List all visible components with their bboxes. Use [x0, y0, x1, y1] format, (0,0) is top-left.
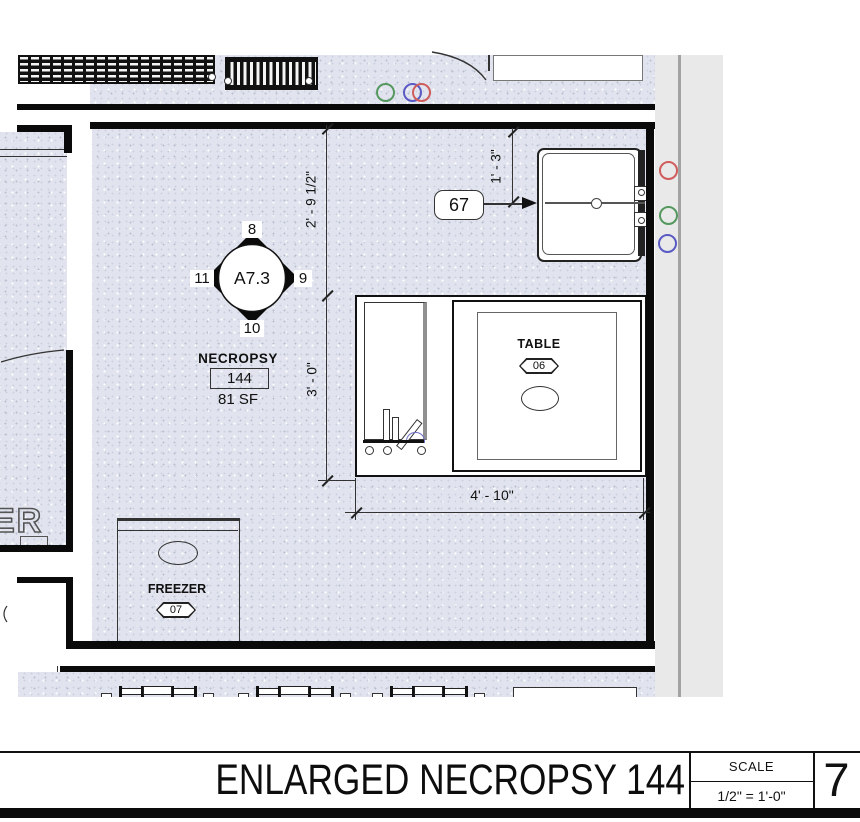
- markup-circle-green[interactable]: [376, 83, 395, 102]
- cart-base-line: [363, 440, 424, 443]
- sheet-number: 7: [813, 752, 860, 807]
- door-leaf-line: [488, 55, 490, 71]
- table-label: TABLE: [489, 337, 589, 351]
- bench-unit-icon: [250, 686, 339, 697]
- table-outline: [513, 687, 637, 697]
- room-number-box: 144: [210, 368, 269, 389]
- casework-grate-icon: [18, 55, 215, 84]
- markup-circle-blue[interactable]: [658, 234, 677, 253]
- cart-tool-icon: [392, 417, 399, 441]
- markup-circle-red[interactable]: [659, 161, 678, 180]
- wall-corridor-south: [17, 104, 657, 110]
- grate-caster-icon: [305, 77, 313, 85]
- wall-left-horizontal-2: [17, 577, 67, 583]
- dim-sink-offset: 1' - 3": [489, 127, 504, 207]
- caster-icon: [383, 446, 392, 455]
- room-area: 81 SF: [188, 391, 288, 408]
- room-name: NECROPSY: [188, 351, 288, 366]
- markup-circle-green[interactable]: [659, 206, 678, 225]
- markup-circle-red[interactable]: [412, 83, 431, 102]
- wall-room-north: [90, 122, 657, 129]
- casework-grate-icon: [225, 57, 318, 90]
- dim-wall-to-table: 2' - 9 1/2": [304, 160, 319, 240]
- cart-tool-icon: [383, 409, 390, 441]
- counter-edge-line: [0, 149, 67, 150]
- detail-number-left: 11: [190, 270, 214, 287]
- dim-line-vertical: [512, 128, 513, 204]
- upper-equipment-outline: [493, 55, 643, 81]
- detail-number-right: 9: [294, 270, 312, 287]
- wall-room-south: [66, 641, 657, 649]
- dim-line-vertical: [326, 297, 327, 483]
- leader-line: [482, 203, 526, 205]
- partial-curve-icon: [0, 604, 10, 624]
- bench-unit-icon: [113, 686, 202, 697]
- counter-edge-line: [0, 156, 67, 157]
- scale-label: SCALE: [690, 759, 813, 774]
- wall-room-west-lower: [66, 577, 73, 648]
- door-swing-arc-icon: [0, 346, 67, 366]
- titleblock-bottom-bar: [0, 808, 860, 818]
- scale-box-divider: [689, 781, 813, 782]
- sink-unit-inner: [542, 153, 635, 255]
- detail-callout-marker[interactable]: A7.3: [205, 231, 299, 325]
- detail-number-top: 8: [242, 221, 262, 238]
- grate-caster-icon: [208, 73, 216, 81]
- table-assembly: TABLE 06: [355, 295, 647, 477]
- wall-left-horizontal: [0, 545, 73, 552]
- wall-room-east: [646, 122, 654, 649]
- table-tag: 06: [519, 358, 559, 374]
- sheet-title: ENLARGED NECROPSY 144: [173, 756, 686, 805]
- grate-caster-icon: [224, 77, 232, 85]
- wall-jog: [64, 125, 72, 153]
- table-drain-icon: [521, 386, 559, 411]
- door-swing-arc-icon: [428, 48, 490, 82]
- detail-marker-sheet: A7.3: [234, 268, 270, 288]
- freezer-drain-icon: [158, 541, 198, 565]
- freezer-tag: 07: [156, 602, 196, 618]
- caster-icon: [417, 446, 426, 455]
- sheet-edge-line: [678, 55, 681, 697]
- adjacent-room-floor: [0, 132, 67, 545]
- wall-room-west-upper: [66, 350, 73, 552]
- wall-north-left-segment: [17, 125, 67, 132]
- leader-arrow-icon: [522, 197, 537, 209]
- detail-number-bottom: 10: [240, 320, 264, 337]
- dim-extension-line: [318, 480, 355, 481]
- dim-line-vertical: [326, 125, 327, 297]
- equipment-tag-67: 67: [434, 190, 484, 220]
- scale-value: 1/2" = 1'-0": [690, 788, 813, 804]
- titleblock-top-line: [0, 751, 860, 753]
- bench-unit-icon: [384, 686, 473, 697]
- caster-icon: [365, 446, 374, 455]
- freezer-lid-line: [117, 530, 238, 531]
- sink-knob-icon: [591, 198, 602, 209]
- dim-table-depth: 3' - 0": [305, 340, 320, 420]
- lower-corridor-floor: [18, 672, 657, 697]
- upper-opening: [18, 81, 90, 105]
- freezer-label: FREEZER: [127, 582, 227, 596]
- freezer-outline: [117, 518, 240, 642]
- sheet-edge-strip: [655, 55, 723, 697]
- dim-line-horizontal: [345, 512, 650, 513]
- dim-table-width: 4' - 10": [442, 487, 542, 503]
- floor-plan-sheet: ER FREEZER 07 TABLE 06: [0, 0, 860, 822]
